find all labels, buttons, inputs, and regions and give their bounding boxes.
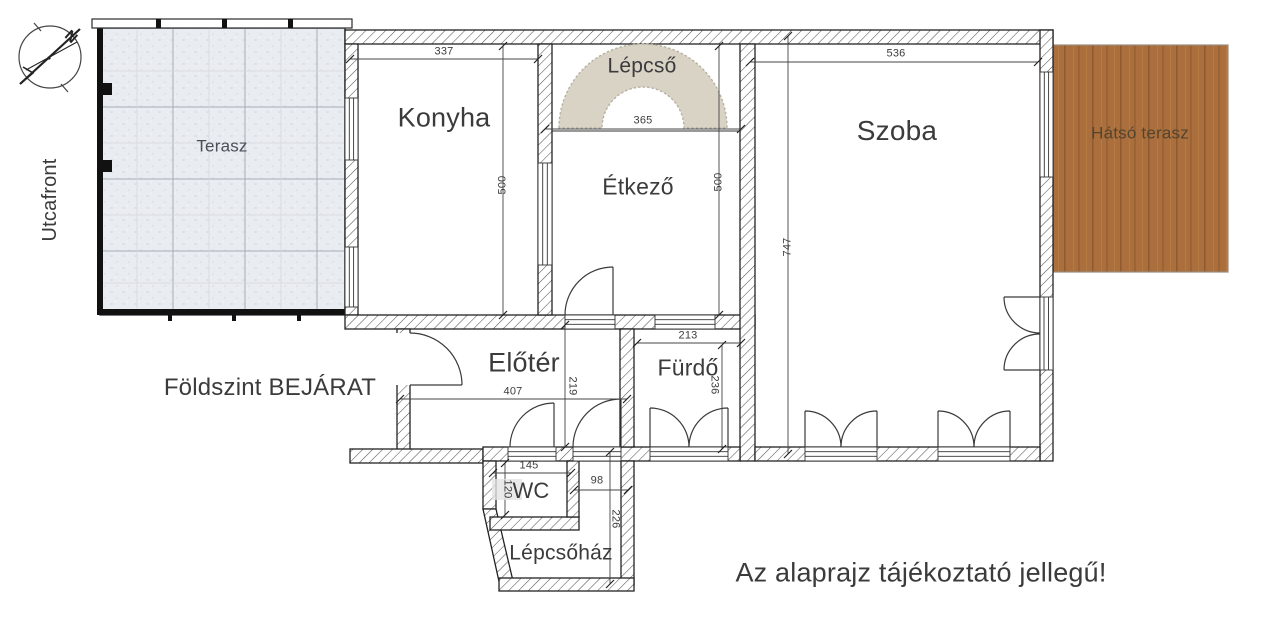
room-label-konyha: Konyha (398, 105, 491, 132)
street-front-label: Utcafront (40, 159, 60, 242)
dim-wc-depth: 120 (502, 480, 513, 499)
room-label-terasz: Terasz (196, 138, 247, 155)
dim-corridor-width: 98 (591, 476, 604, 487)
dim-konyha-width: 337 (435, 47, 454, 58)
dim-konyha-depth: 500 (498, 176, 509, 195)
dim-eloter-depth: 219 (567, 377, 578, 396)
room-label-wc: WC (512, 480, 549, 502)
room-label-lepcso: Lépcső (608, 56, 677, 77)
dim-furdo-depth: 236 (709, 376, 720, 395)
room-label-eloter: Előtér (488, 350, 560, 377)
plan-drawing (0, 0, 1280, 617)
rear-deck-area (1053, 45, 1228, 272)
room-label-etkezo: Étkező (602, 176, 674, 199)
terrace-area (92, 19, 352, 321)
dim-etkezo-depth: 500 (714, 173, 725, 192)
dim-lepcso-width: 365 (634, 116, 653, 127)
room-label-lepcsohaz: Lépcsőház (509, 543, 612, 564)
room-label-hatso-terasz: Hátsó terasz (1091, 125, 1189, 142)
floor-entrance-label: Földszint BEJÁRAT (164, 376, 376, 400)
dim-furdo-width: 213 (679, 331, 698, 342)
floor-plan: N Utcafront Terasz Konyha Lépcső Étkező … (0, 0, 1280, 617)
dim-eloter-width: 407 (504, 387, 523, 398)
dim-szoba-depth: 747 (783, 238, 794, 257)
room-label-szoba: Szoba (857, 117, 937, 145)
terrace-railing (92, 19, 352, 28)
disclaimer-text: Az alaprajz tájékoztató jellegű! (735, 560, 1106, 587)
dim-szoba-width: 536 (887, 49, 906, 60)
dim-wc-width: 145 (520, 461, 539, 472)
dim-lepcsohaz-depth: 226 (610, 510, 621, 529)
